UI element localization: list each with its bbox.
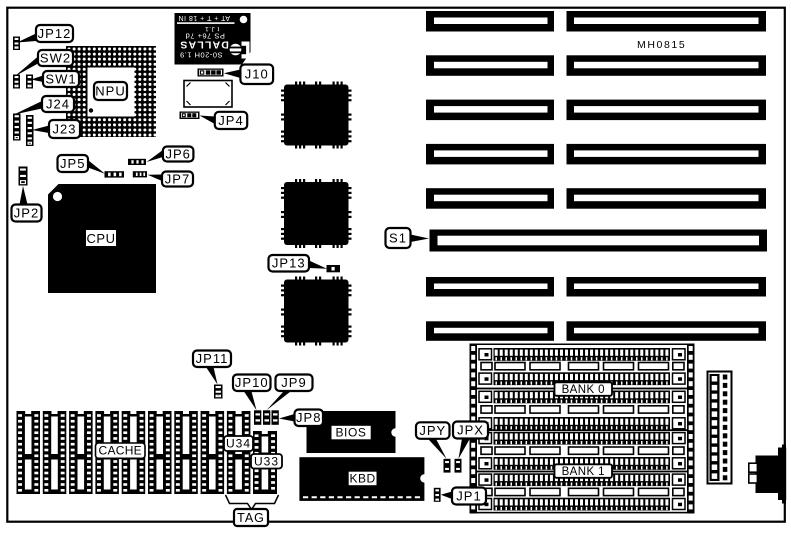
svg-text:S1: S1 [389,230,407,245]
svg-text:JP6: JP6 [165,146,190,161]
svg-text:JPY: JPY [419,423,446,438]
svg-text:JP1: JP1 [456,488,481,503]
svg-text:U34: U34 [226,437,251,451]
svg-text:BIOS: BIOS [335,426,366,440]
svg-text:t J.1: t J.1 [205,25,220,32]
svg-text:CACHE: CACHE [98,444,142,458]
svg-text:BANK 1: BANK 1 [562,466,605,478]
svg-text:NPU: NPU [95,83,125,98]
svg-text:JP10: JP10 [235,375,269,390]
svg-text:JP7: JP7 [165,171,190,186]
svg-text:JP13: JP13 [272,256,306,271]
svg-text:J24: J24 [46,96,70,111]
svg-text:MH0815: MH0815 [637,39,686,51]
svg-text:JP5: JP5 [60,156,85,171]
svg-text:JP8: JP8 [296,410,321,425]
svg-text:CPU: CPU [87,231,116,246]
svg-text:JP12: JP12 [38,26,72,41]
svg-text:JP9: JP9 [281,375,306,390]
svg-text:JP11: JP11 [196,351,229,366]
svg-text:J23: J23 [53,121,77,136]
svg-text:DALLAS: DALLAS [179,38,229,50]
svg-text:S0-20H 1.9: S0-20H 1.9 [180,50,223,59]
svg-text:SW1: SW1 [45,71,76,86]
svg-text:JP2: JP2 [14,205,39,220]
svg-text:KBD: KBD [350,472,376,486]
svg-text:J10: J10 [245,67,269,82]
svg-text:JPX: JPX [457,422,484,437]
svg-text:U33: U33 [254,454,279,468]
svg-text:SW2: SW2 [40,50,71,65]
svg-text:BANK 0: BANK 0 [562,384,605,396]
svg-text:JP4: JP4 [218,113,243,128]
svg-text:TAG: TAG [237,511,265,525]
svg-text:AT + T + 18 IN: AT + T + 18 IN [178,14,230,21]
